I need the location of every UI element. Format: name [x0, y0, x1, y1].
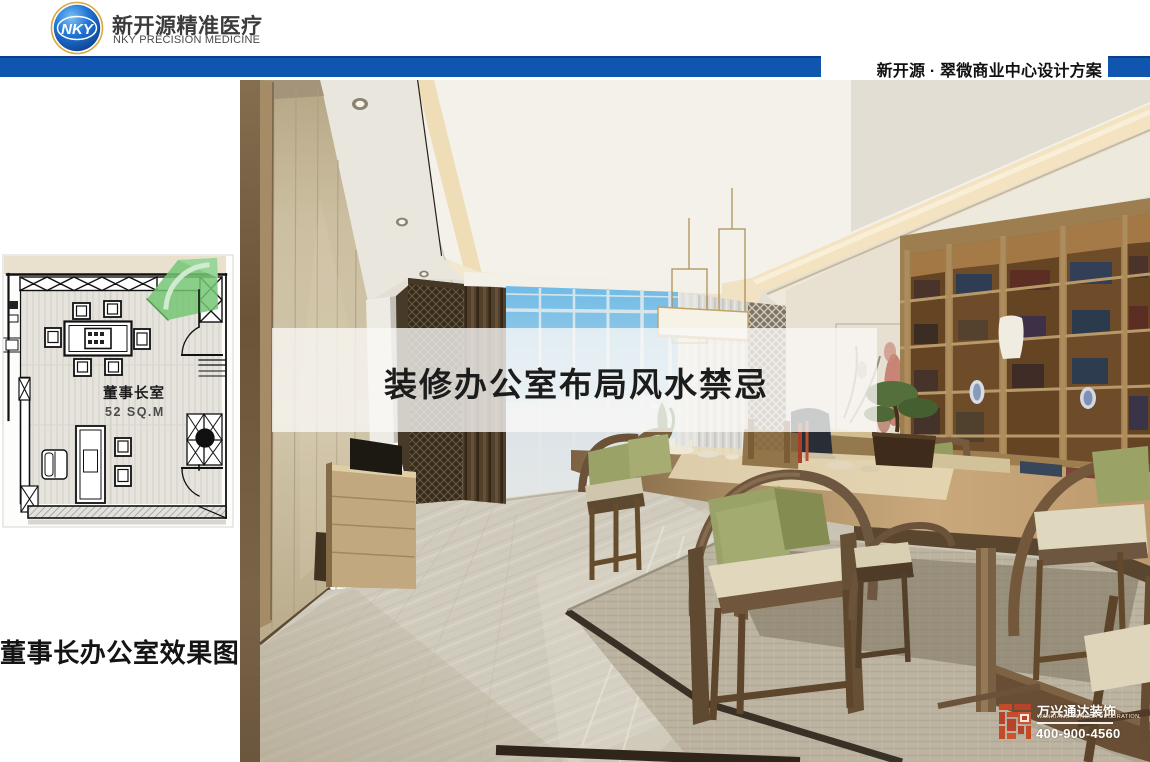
svg-text:董事长室: 董事长室 [103, 384, 165, 402]
svg-text:NKY: NKY [61, 21, 95, 38]
svg-text:52 SQ.M: 52 SQ.M [105, 405, 165, 419]
